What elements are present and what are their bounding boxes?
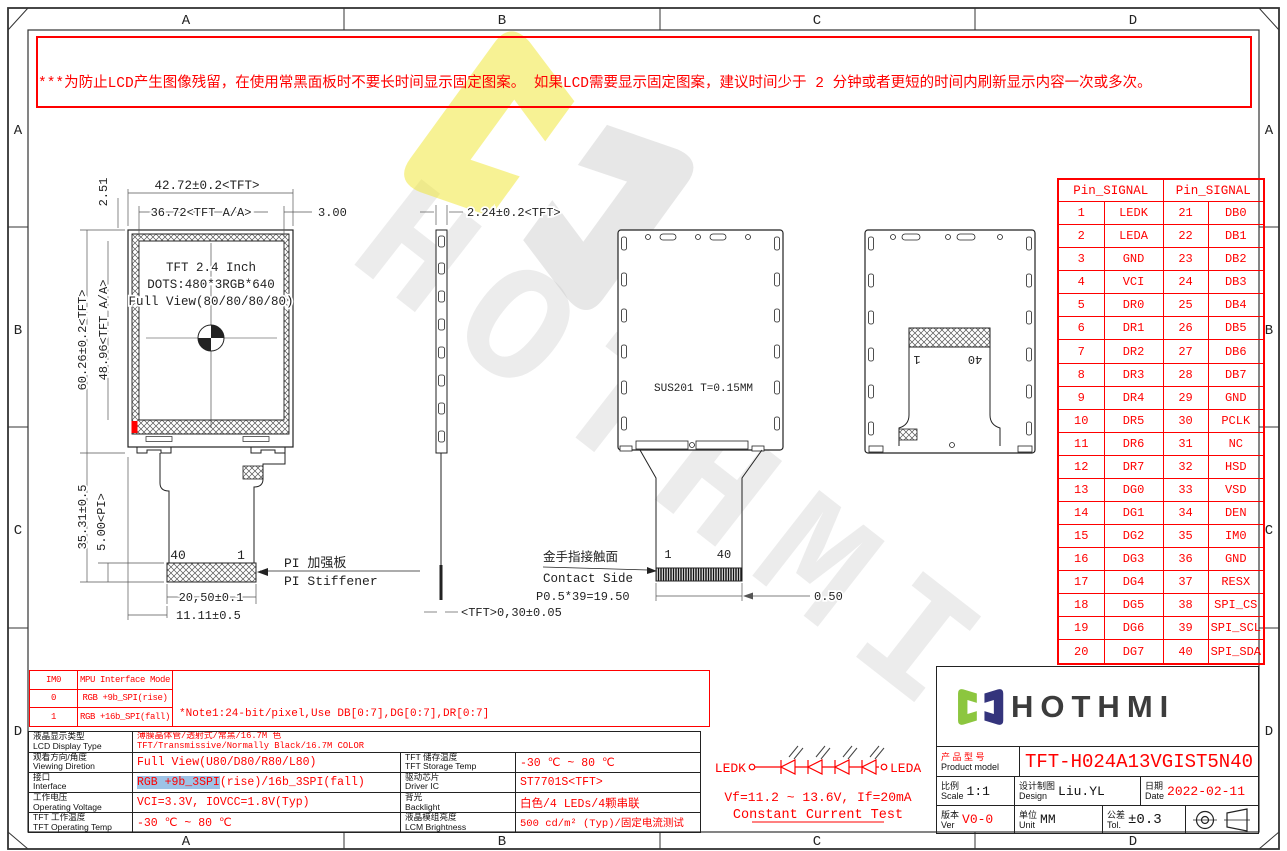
svg-text:D: D [1129, 834, 1137, 850]
pin-number: 17 [1058, 571, 1104, 594]
svg-text:1: 1 [237, 548, 245, 563]
pin-row: 12 DR7 32 HSD [1058, 455, 1264, 478]
spec-value: TFT/Transmissive/Normally Black/16.7M CO… [137, 742, 700, 752]
pin-row: 16 DG3 36 GND [1058, 548, 1264, 571]
svg-text:A: A [182, 834, 191, 850]
pin-signal: DG3 [1104, 548, 1163, 571]
pin-signal: DB3 [1208, 271, 1264, 294]
pin-number: 26 [1163, 317, 1208, 340]
pin-number: 18 [1058, 594, 1104, 617]
svg-text:PI Stiffener: PI Stiffener [284, 574, 378, 589]
spec-value: 500 cd/m² (Typ)/固定电流测试 [516, 813, 701, 833]
retention-warning: ***为防止LCD产生图像残留，在使用常黑面板时不要长时间显示固定图案。 如果L… [36, 36, 1252, 108]
pin-signal: GND [1104, 248, 1163, 271]
pin-row: 13 DG0 33 VSD [1058, 478, 1264, 501]
note-1: *Note1:24-bit/pixel,Use DB[0:7],DG[0:7],… [179, 706, 709, 723]
pin-row: 2 LEDA 22 DB1 [1058, 225, 1264, 248]
date-value: 2022-02-11 [1167, 784, 1245, 799]
warning-line-1: ***为防止LCD产生图像残留，在使用常黑面板时不要长时间显示固定图案。 如果L… [38, 76, 1250, 93]
pin-signal-table: Pin_SIGNAL Pin_SIGNAL 1 LEDK 21 DB0 2 LE… [1057, 178, 1265, 665]
svg-text:C: C [813, 834, 821, 850]
svg-text:SUS201 T=0.15MM: SUS201 T=0.15MM [654, 383, 753, 395]
pin-signal: DG1 [1104, 502, 1163, 525]
pin-signal: DR2 [1104, 340, 1163, 363]
pin-number: 32 [1163, 455, 1208, 478]
pin-signal: DR0 [1104, 294, 1163, 317]
svg-text:B: B [498, 13, 506, 29]
pin-row: 11 DR6 31 NC [1058, 432, 1264, 455]
svg-text:40: 40 [717, 548, 731, 562]
spec-value: ST7701S<TFT> [516, 772, 701, 792]
pin-number: 22 [1163, 225, 1208, 248]
pin-signal: SPI_CS [1208, 594, 1264, 617]
pin-row: 4 VCI 24 DB3 [1058, 271, 1264, 294]
pin-row: 5 DR0 25 DB4 [1058, 294, 1264, 317]
svg-text:2.24±0.2<TFT>: 2.24±0.2<TFT> [467, 206, 561, 220]
pin-signal: DB1 [1208, 225, 1264, 248]
mpu-im-value: 0 [30, 689, 78, 708]
unit-value: MM [1040, 812, 1056, 827]
spec-label-en: LCD Display Type [33, 742, 132, 752]
svg-text:D: D [1129, 13, 1137, 29]
mpu-mode-value: RGB +9b_SPI(rise) [78, 689, 173, 708]
pin-signal: IM0 [1208, 525, 1264, 548]
pin-row: 20 DG7 40 SPI_SDA [1058, 640, 1264, 664]
flipped-view: 1 40 [865, 230, 1035, 453]
pin-number: 7 [1058, 340, 1104, 363]
pin-row: 6 DR1 26 DB5 [1058, 317, 1264, 340]
scale-design-date-row: 比例Scale 1:1 设计制图Design Liu.YL 日期Date 202… [937, 776, 1258, 805]
pin-number: 39 [1163, 617, 1208, 640]
pin-row: 17 DG4 37 RESX [1058, 571, 1264, 594]
side-view: 2.24±0.2<TFT> <TFT>0,30±0.05 [420, 205, 562, 620]
svg-text:1: 1 [664, 548, 671, 562]
pin-row: 19 DG6 39 SPI_SCL [1058, 617, 1264, 640]
pin1-marker [132, 421, 138, 433]
pin-signal: PCLK [1208, 409, 1264, 432]
scale-value: 1:1 [967, 784, 990, 799]
svg-text:<TFT>0,30±0.05: <TFT>0,30±0.05 [461, 606, 562, 620]
pin-number: 27 [1163, 340, 1208, 363]
svg-text:36.72<TFT A/A>: 36.72<TFT A/A> [151, 206, 252, 220]
pin-signal: DB5 [1208, 317, 1264, 340]
pin-signal: VCI [1104, 271, 1163, 294]
svg-text:C: C [14, 523, 22, 539]
notes-box: *Note1:24-bit/pixel,Use DB[0:7],DG[0:7],… [172, 670, 710, 727]
svg-text:D: D [1265, 724, 1273, 740]
pin-number: 31 [1163, 432, 1208, 455]
svg-text:20,50±0.1: 20,50±0.1 [179, 591, 244, 605]
svg-text:D: D [14, 724, 22, 740]
mpu-im0-header: IM0 [30, 671, 78, 690]
svg-text:B: B [14, 323, 22, 339]
svg-text:40: 40 [968, 352, 982, 366]
pin-signal: DG4 [1104, 571, 1163, 594]
pin-signal: DB0 [1208, 202, 1264, 225]
pin-signal: GND [1208, 386, 1264, 409]
svg-text:60.26±0.2<TFT>: 60.26±0.2<TFT> [76, 290, 90, 391]
pin-number: 11 [1058, 432, 1104, 455]
pin-signal: GND [1208, 548, 1264, 571]
pin-signal: DB6 [1208, 340, 1264, 363]
title-block: HOTHMI 产 品 型 号 Product model TFT-H024A13… [936, 666, 1259, 834]
pin-number: 4 [1058, 271, 1104, 294]
tolerance-value: ±0.3 [1128, 812, 1162, 828]
pin-signal: DG6 [1104, 617, 1163, 640]
pin-signal: DG2 [1104, 525, 1163, 548]
spec-value: Full View(U80/D80/R80/L80) [133, 752, 401, 772]
pin-signal: NC [1208, 432, 1264, 455]
pin-signal: DB2 [1208, 248, 1264, 271]
svg-text:TFT 2.4 Inch: TFT 2.4 Inch [166, 261, 256, 275]
pin-number: 16 [1058, 548, 1104, 571]
pin-number: 3 [1058, 248, 1104, 271]
pin-row: 1 LEDK 21 DB0 [1058, 202, 1264, 225]
pin-number: 1 [1058, 202, 1104, 225]
svg-text:5.00<PI>: 5.00<PI> [95, 493, 109, 551]
pin-number: 12 [1058, 455, 1104, 478]
pin-header-left: Pin_SIGNAL [1058, 179, 1163, 202]
pin-number: 2 [1058, 225, 1104, 248]
spec-row-interface: 接口Interface RGB +9b_3SPI(rise)/16b_3SPI(… [29, 772, 701, 792]
pin-signal: HSD [1208, 455, 1264, 478]
spec-table: 液晶显示类型 LCD Display Type 薄膜晶体管/透射式/常黑/16.… [28, 731, 701, 833]
pin-header-right: Pin_SIGNAL [1163, 179, 1264, 202]
svg-text:0.50: 0.50 [814, 590, 843, 604]
pin-number: 19 [1058, 617, 1104, 640]
svg-text:A: A [14, 123, 23, 139]
svg-text:金手指接触面: 金手指接触面 [543, 549, 618, 565]
pin-signal: DR6 [1104, 432, 1163, 455]
pin-signal: LEDA [1104, 225, 1163, 248]
pin-number: 13 [1058, 478, 1104, 501]
pin-row: 10 DR5 30 PCLK [1058, 409, 1264, 432]
pin-row: 7 DR2 27 DB6 [1058, 340, 1264, 363]
pin-signal: SPI_SCL [1208, 617, 1264, 640]
svg-text:B: B [1265, 323, 1273, 339]
pin-number: 38 [1163, 594, 1208, 617]
pin-number: 21 [1163, 202, 1208, 225]
svg-text:PI 加强板: PI 加强板 [284, 556, 346, 571]
pin-table-header: Pin_SIGNAL Pin_SIGNAL [1058, 179, 1264, 202]
pin-signal: LEDK [1104, 202, 1163, 225]
mpu-row: 0 RGB +9b_SPI(rise) [30, 689, 173, 708]
pin-row: 8 DR3 28 DB7 [1058, 363, 1264, 386]
pin-number: 28 [1163, 363, 1208, 386]
mpu-row: 1 RGB +16b_SPI(fall) [30, 708, 173, 727]
pin-number: 25 [1163, 294, 1208, 317]
pin-number: 23 [1163, 248, 1208, 271]
spec-row-voltage: 工作电压Operating Voltage VCI=3.3V, IOVCC=1.… [29, 792, 701, 812]
pin-signal: DR3 [1104, 363, 1163, 386]
svg-text:40: 40 [170, 548, 186, 563]
pin-signal: DG0 [1104, 478, 1163, 501]
spec-row-temp: TFT 工作温度TFT Operating Temp -30 ℃ ~ 80 ℃ … [29, 813, 701, 833]
projection-symbol-icon [1191, 808, 1253, 832]
svg-text:A: A [1265, 123, 1274, 139]
pin-number: 34 [1163, 502, 1208, 525]
pin-number: 37 [1163, 571, 1208, 594]
pin-number: 6 [1058, 317, 1104, 340]
svg-text:Contact Side: Contact Side [543, 572, 633, 586]
pin-number: 9 [1058, 386, 1104, 409]
datasheet-page: HOTHMI AB CD AB CD AB CD AB CD [0, 0, 1287, 851]
pin-signal: DEN [1208, 502, 1264, 525]
pin-number: 40 [1163, 640, 1208, 664]
pin-number: 10 [1058, 409, 1104, 432]
pin-row: 9 DR4 29 GND [1058, 386, 1264, 409]
pin-number: 15 [1058, 525, 1104, 548]
svg-text:P0.5*39=19.50: P0.5*39=19.50 [536, 590, 630, 604]
spec-value-interface: RGB +9b_3SPI(rise)/16b_3SPI(fall) [133, 772, 401, 792]
version-value: V0-0 [962, 812, 993, 827]
spec-value: -30 ℃ ~ 80 ℃ [133, 813, 401, 833]
pin-number: 33 [1163, 478, 1208, 501]
pin-signal: DG5 [1104, 594, 1163, 617]
mpu-mode-table: IM0 MPU Interface Mode 0 RGB +9b_SPI(ris… [29, 670, 173, 727]
pin-number: 24 [1163, 271, 1208, 294]
pin-signal: DR1 [1104, 317, 1163, 340]
svg-text:11.11±0.5: 11.11±0.5 [176, 609, 241, 623]
version-unit-tol-row: 版本Ver V0-0 单位Unit MM 公差Tol. ±0.3 [937, 805, 1258, 833]
svg-text:LEDK: LEDK [715, 761, 746, 776]
pin-signal: VSD [1208, 478, 1264, 501]
spec-value: VCI=3.3V, IOVCC=1.8V(Typ) [133, 792, 401, 812]
pin-number: 5 [1058, 294, 1104, 317]
spec-row-viewing: 观看方向/角度Viewing Diretion Full View(U80/D8… [29, 752, 701, 772]
svg-text:C: C [1265, 523, 1273, 539]
pin-number: 35 [1163, 525, 1208, 548]
mpu-im-value: 1 [30, 708, 78, 727]
pin-row: 14 DG1 34 DEN [1058, 502, 1264, 525]
svg-text:DOTS:480*3RGB*640: DOTS:480*3RGB*640 [147, 278, 275, 292]
pin-row: 3 GND 23 DB2 [1058, 248, 1264, 271]
mpu-header-row: IM0 MPU Interface Mode [30, 671, 173, 690]
pin-signal: RESX [1208, 571, 1264, 594]
spec-row-display-type: 液晶显示类型 LCD Display Type 薄膜晶体管/透射式/常黑/16.… [29, 732, 701, 753]
pin-number: 36 [1163, 548, 1208, 571]
pin-row: 15 DG2 35 IM0 [1058, 525, 1264, 548]
interface-highlight: RGB +9b_3SPI [137, 776, 220, 789]
svg-text:1: 1 [913, 352, 920, 366]
led-circuit: LEDK LEDA Vf=11.2 ~ 13.6V, If=20mA Const… [715, 746, 922, 823]
svg-text:A: A [182, 13, 191, 29]
hothmi-logo-icon [951, 678, 1005, 736]
pin-signal: DB4 [1208, 294, 1264, 317]
pin-signal: SPI_SDA [1208, 640, 1264, 664]
pin-number: 30 [1163, 409, 1208, 432]
back-view: SUS201 T=0.15MM 1 40 金手指接触面 Contact Side… [536, 230, 843, 604]
mpu-mode-header: MPU Interface Mode [78, 671, 173, 690]
mpu-mode-value: RGB +16b_SPI(fall) [78, 708, 173, 727]
svg-text:C: C [813, 13, 821, 29]
front-view: TFT 2.4 Inch DOTS:480*3RGB*640 Full View… [76, 178, 420, 623]
pin-number: 14 [1058, 502, 1104, 525]
svg-text:3.00: 3.00 [318, 206, 347, 220]
pin-signal: DR7 [1104, 455, 1163, 478]
svg-text:Constant Current Test: Constant Current Test [733, 808, 903, 823]
svg-text:2.51: 2.51 [97, 178, 111, 207]
pin-signal: DB7 [1208, 363, 1264, 386]
pin-number: 8 [1058, 363, 1104, 386]
pin-signal: DG7 [1104, 640, 1163, 664]
pin-table-body: 1 LEDK 21 DB0 2 LEDA 22 DB1 3 GND 23 DB2 [1058, 202, 1264, 665]
designer-value: Liu.YL [1058, 784, 1105, 799]
svg-text:42.72±0.2<TFT>: 42.72±0.2<TFT> [154, 179, 259, 193]
spec-value: -30 ℃ ~ 80 ℃ [516, 752, 701, 772]
svg-text:35.31±0.5: 35.31±0.5 [76, 485, 90, 550]
svg-text:B: B [498, 834, 506, 850]
pin-number: 20 [1058, 640, 1104, 664]
svg-text:LEDA: LEDA [890, 761, 921, 776]
logo-row: HOTHMI [937, 667, 1258, 746]
pin-signal: DR5 [1104, 409, 1163, 432]
pin-signal: DR4 [1104, 386, 1163, 409]
pin-number: 29 [1163, 386, 1208, 409]
product-model-row: 产 品 型 号 Product model TFT-H024A13VGIST5N… [937, 746, 1258, 776]
spec-value: 白色/4 LEDs/4颗串联 [516, 792, 701, 812]
product-model-value: TFT-H024A13VGIST5N40 [1025, 751, 1253, 773]
brand-name: HOTHMI [1011, 689, 1175, 725]
pin-row: 18 DG5 38 SPI_CS [1058, 594, 1264, 617]
svg-text:Vf=11.2 ~ 13.6V, If=20mA: Vf=11.2 ~ 13.6V, If=20mA [724, 790, 911, 805]
svg-text:48.96<TFT A/A>: 48.96<TFT A/A> [97, 280, 111, 381]
svg-text:Full View(80/80/80/80): Full View(80/80/80/80) [128, 295, 293, 309]
